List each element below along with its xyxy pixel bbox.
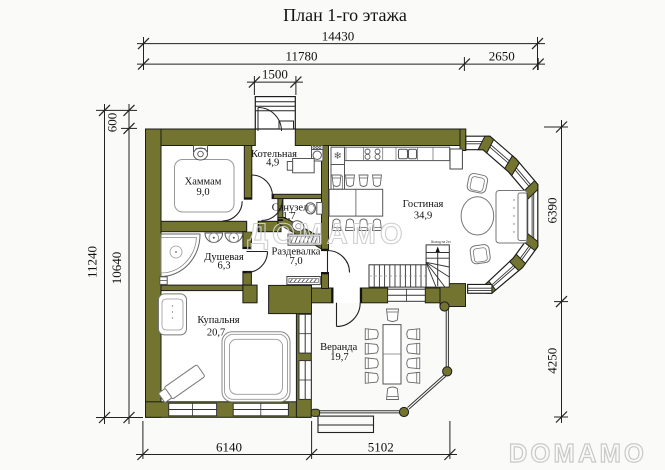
svg-text:Гостиная: Гостиная: [403, 199, 444, 210]
svg-text:План 1-го этажа: План 1-го этажа: [283, 5, 407, 25]
svg-text:4250: 4250: [545, 348, 560, 374]
svg-text:20,7: 20,7: [207, 328, 225, 339]
svg-text:DOMAMO: DOMAMO: [509, 440, 647, 468]
svg-text:5102: 5102: [368, 439, 394, 454]
svg-text:6140: 6140: [216, 439, 242, 454]
svg-text:6390: 6390: [545, 198, 560, 224]
svg-text:19,7: 19,7: [330, 352, 348, 363]
svg-text:Выход на 2эт: Выход на 2эт: [431, 240, 451, 244]
svg-text:2650: 2650: [489, 49, 515, 64]
svg-text:Хаммам: Хаммам: [185, 177, 222, 188]
svg-text:600: 600: [105, 113, 120, 133]
svg-text:34,9: 34,9: [414, 211, 432, 222]
svg-text:6,3: 6,3: [217, 261, 230, 272]
svg-text:4,9: 4,9: [266, 157, 279, 168]
svg-text:11240: 11240: [85, 246, 100, 278]
svg-text:Купальня: Купальня: [197, 315, 239, 326]
svg-text:1500: 1500: [262, 67, 288, 82]
svg-text:❄: ❄: [334, 151, 342, 162]
svg-text:9,0: 9,0: [196, 187, 209, 198]
svg-text:7,0: 7,0: [289, 256, 302, 267]
svg-text:ДОМАМО: ДОМАМО: [247, 219, 406, 251]
svg-text:14430: 14430: [322, 28, 355, 43]
svg-text:11780: 11780: [285, 49, 317, 64]
svg-text:10640: 10640: [109, 252, 124, 285]
